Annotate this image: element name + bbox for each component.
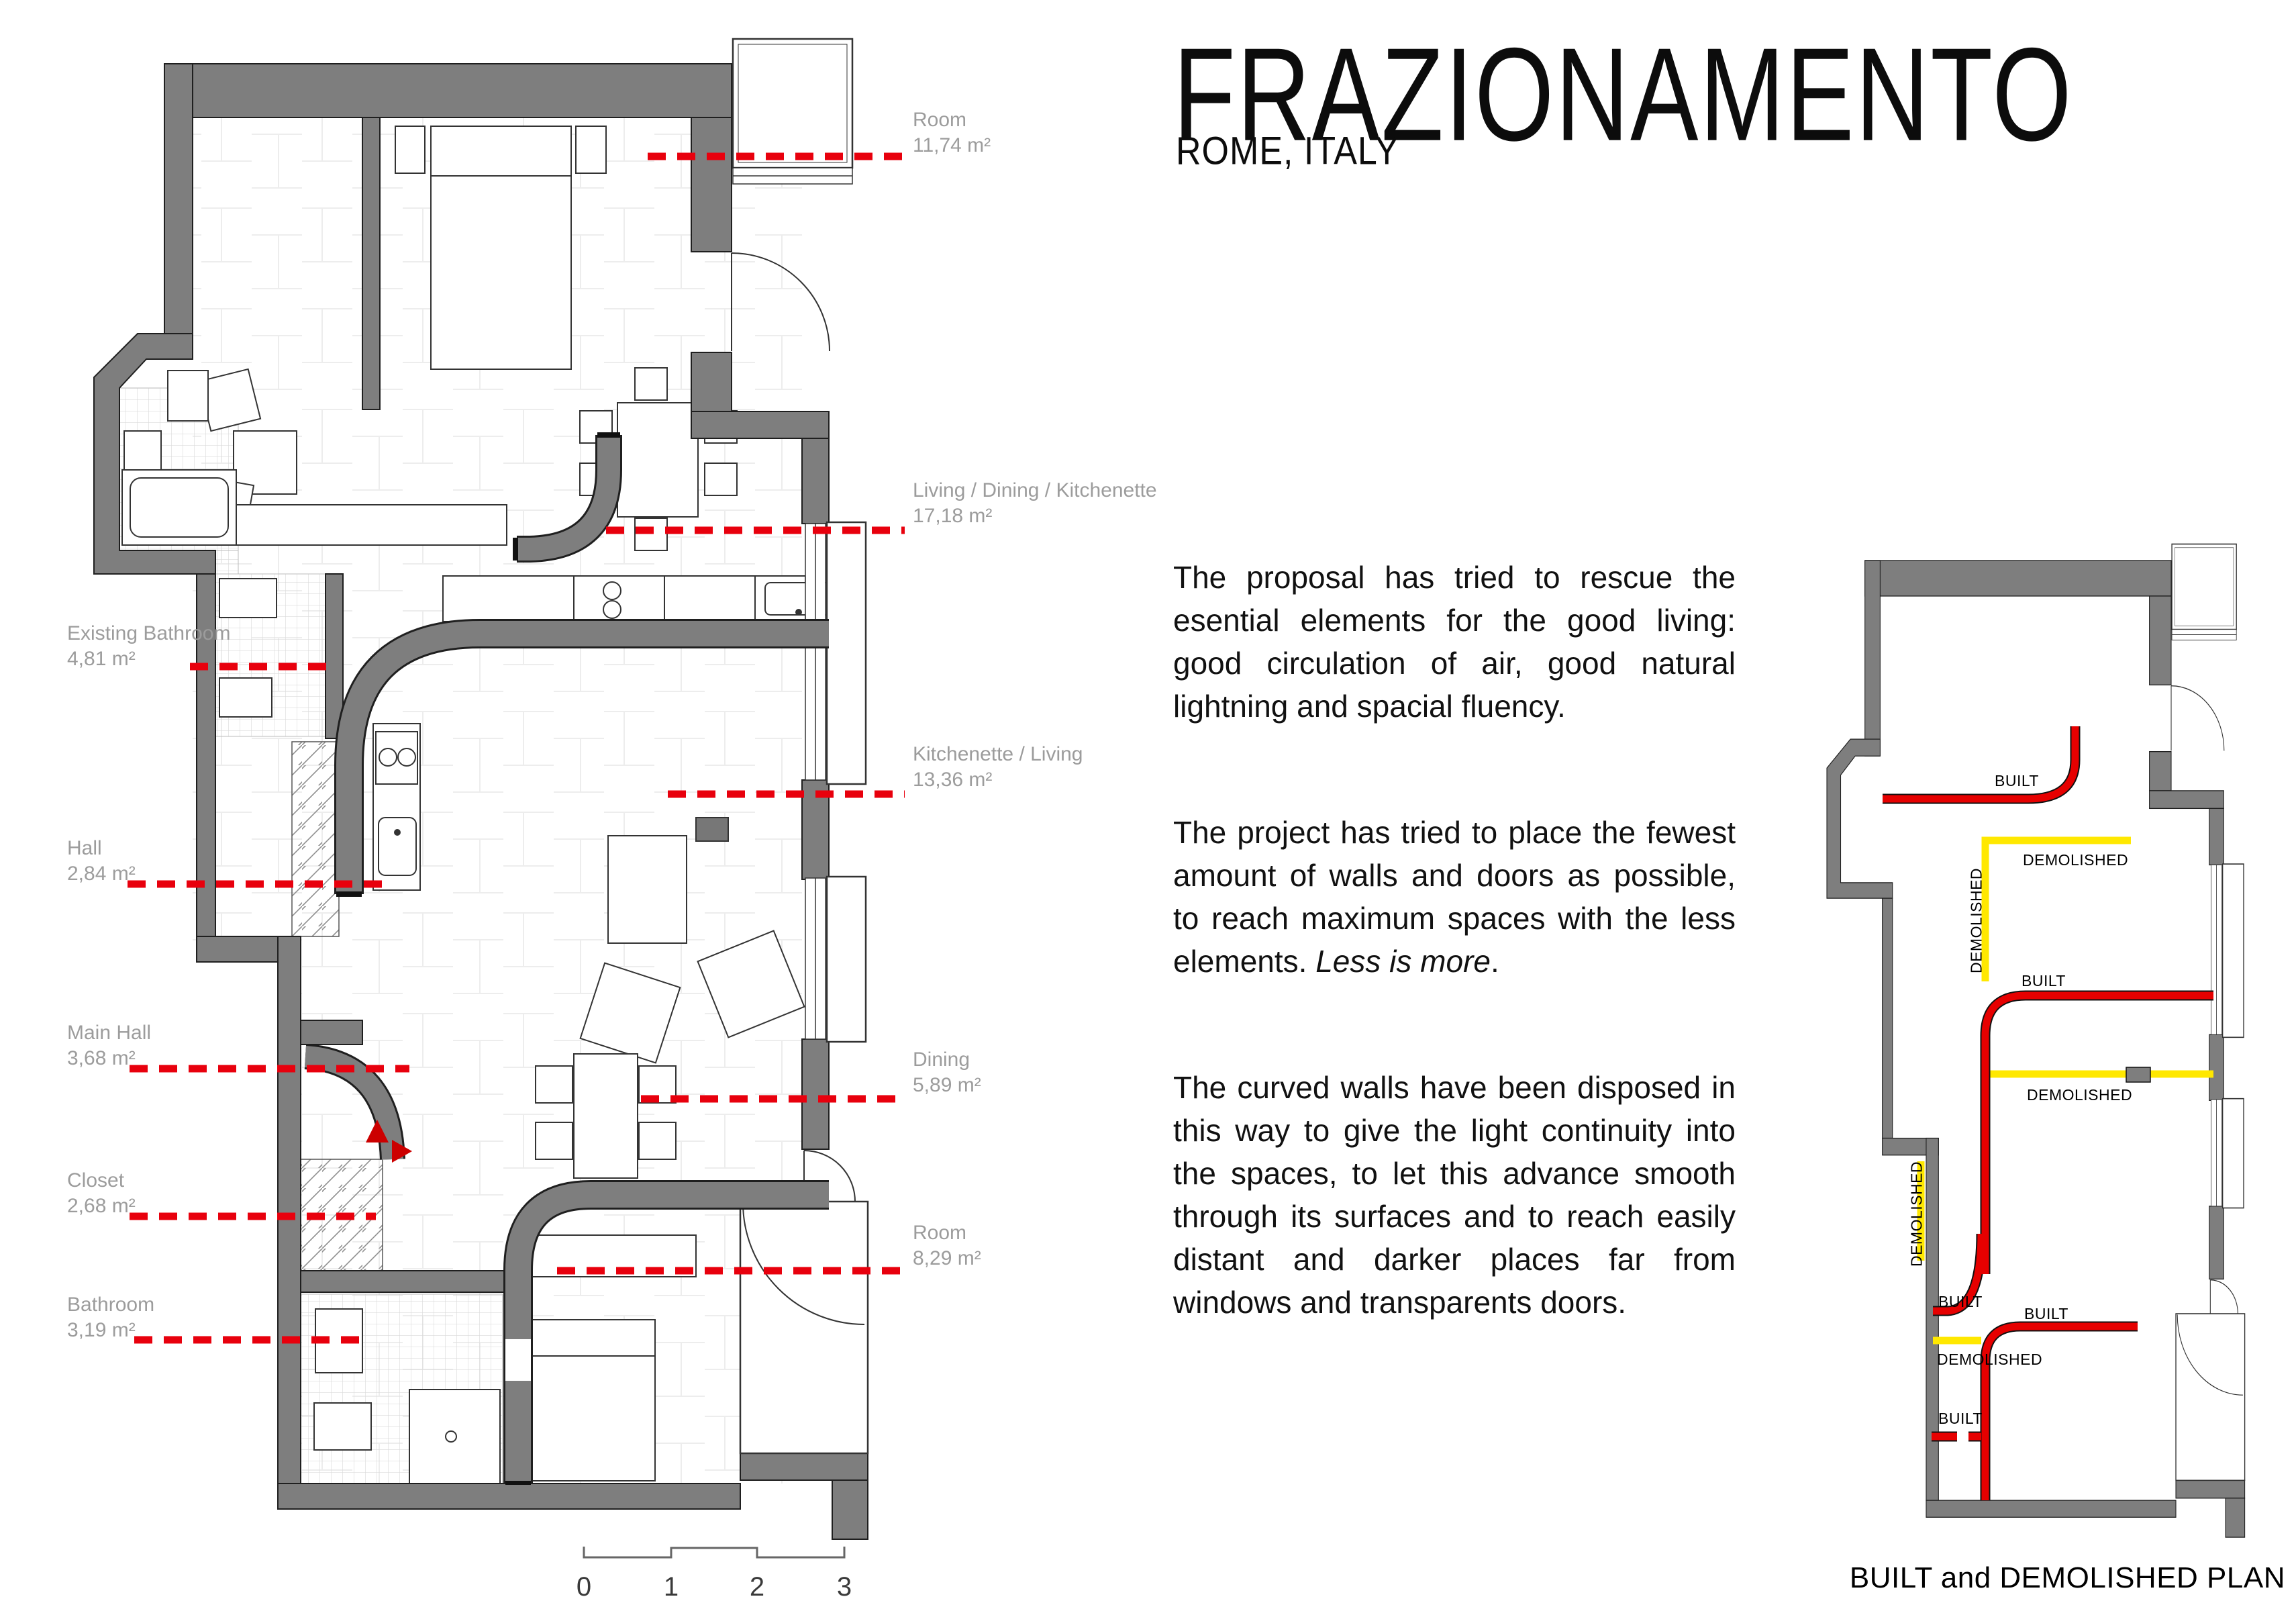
room-label-main-hall: Main Hall3,68 m² bbox=[67, 1020, 151, 1071]
room-name: Hall bbox=[67, 836, 136, 861]
room-area: 4,81 m² bbox=[67, 646, 230, 672]
room-area: 17,18 m² bbox=[913, 503, 1157, 529]
room-name: Dining bbox=[913, 1047, 981, 1073]
room-label-hall: Hall2,84 m² bbox=[67, 836, 136, 887]
demolished-annotation-vertical: DEMOLISHED bbox=[1908, 1157, 1926, 1271]
built-annotation: BUILT bbox=[2024, 1305, 2068, 1323]
room-label-kitchenette-living: Kitchenette / Living13,36 m² bbox=[913, 742, 1083, 793]
room-area: 2,84 m² bbox=[67, 861, 136, 887]
room-label-room1: Room11,74 m² bbox=[913, 107, 991, 158]
demolished-annotation: DEMOLISHED bbox=[2027, 1086, 2132, 1104]
description-paragraph-3: The curved walls have been disposed in t… bbox=[1173, 1066, 1736, 1324]
room-name: Room bbox=[913, 107, 991, 133]
room-label-existing-bathroom: Existing Bathroom4,81 m² bbox=[67, 621, 230, 672]
room-label-living-dining-kitchenette: Living / Dining / Kitchenette17,18 m² bbox=[913, 478, 1157, 529]
scale-tick-3: 3 bbox=[834, 1572, 854, 1602]
p2-end: . bbox=[1491, 944, 1499, 979]
room-area: 11,74 m² bbox=[913, 133, 991, 158]
room-area: 5,89 m² bbox=[913, 1073, 981, 1098]
scale-bar bbox=[584, 1547, 844, 1557]
built-annotation: BUILT bbox=[1938, 1293, 1983, 1311]
room-area: 13,36 m² bbox=[913, 767, 1083, 793]
room-name: Closet bbox=[67, 1168, 136, 1194]
room-name: Existing Bathroom bbox=[67, 621, 230, 646]
description-paragraph-2: The project has tried to place the fewes… bbox=[1173, 811, 1736, 983]
room-label-dining: Dining5,89 m² bbox=[913, 1047, 981, 1098]
built-annotation: BUILT bbox=[2022, 972, 2066, 990]
demolished-annotation: DEMOLISHED bbox=[2023, 851, 2128, 869]
room-name: Room bbox=[913, 1220, 981, 1246]
room-area: 2,68 m² bbox=[67, 1194, 136, 1219]
room-name: Kitchenette / Living bbox=[913, 742, 1083, 767]
room-name: Bathroom bbox=[67, 1292, 154, 1318]
built-annotation: BUILT bbox=[1938, 1410, 1983, 1428]
room-area: 3,19 m² bbox=[67, 1318, 154, 1343]
scale-tick-2: 2 bbox=[747, 1572, 767, 1602]
main-floor-plan bbox=[94, 39, 905, 1557]
demolished-annotation: DEMOLISHED bbox=[1937, 1351, 2042, 1369]
description-paragraph-1: The proposal has tried to rescue the ese… bbox=[1173, 556, 1736, 728]
room-label-bathroom: Bathroom3,19 m² bbox=[67, 1292, 154, 1343]
scale-tick-0: 0 bbox=[574, 1572, 594, 1602]
scale-tick-1: 1 bbox=[661, 1572, 681, 1602]
room-area: 8,29 m² bbox=[913, 1246, 981, 1271]
room-name: Living / Dining / Kitchenette bbox=[913, 478, 1157, 503]
built-annotation: BUILT bbox=[1995, 772, 2039, 790]
room-area: 3,68 m² bbox=[67, 1046, 151, 1071]
built-demolished-plan bbox=[1827, 544, 2245, 1537]
presentation-board: FRAZIONAMENTO ROME, ITALY The proposal h… bbox=[0, 0, 2296, 1605]
built-demolished-caption: BUILT and DEMOLISHED PLAN bbox=[1745, 1561, 2285, 1595]
room-label-room2: Room8,29 m² bbox=[913, 1220, 981, 1271]
room-label-closet: Closet2,68 m² bbox=[67, 1168, 136, 1219]
door-opening bbox=[505, 1339, 531, 1381]
room-name: Main Hall bbox=[67, 1020, 151, 1046]
demolished-annotation-vertical: DEMOLISHED bbox=[1968, 864, 1986, 978]
project-subtitle: ROME, ITALY bbox=[1176, 129, 1399, 174]
p2-italic-text: Less is more bbox=[1315, 944, 1491, 979]
